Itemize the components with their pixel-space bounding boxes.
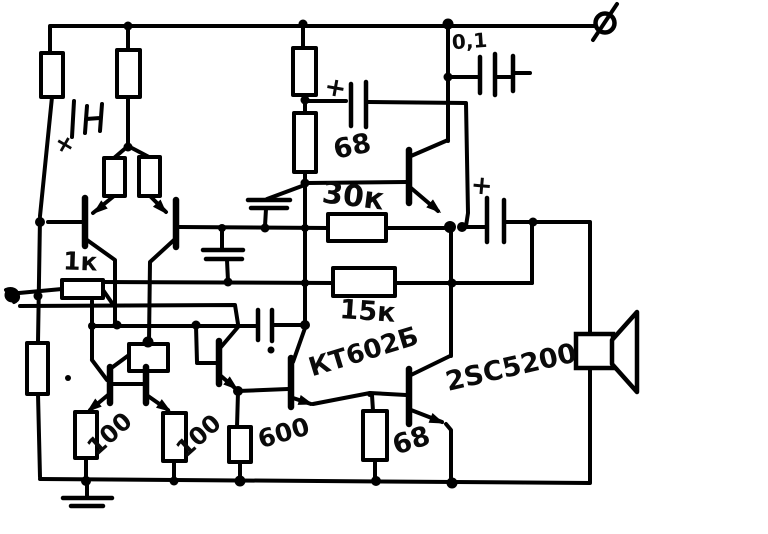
output-terminal [593,4,617,40]
resistor-1k [62,280,103,298]
emitter-arrow-icon [298,396,312,405]
left-riser-92 [92,301,107,380]
output-node-wires [466,222,590,334]
speaker [576,312,637,392]
speaker-horn-icon [612,312,637,392]
plus-mark-supply: + [49,127,80,161]
resistor-diff-emitter-b [139,157,160,196]
emitter-arrow-icon [429,414,443,423]
resistor-diff-emitter-a [104,158,125,196]
feedback-line-283 [103,282,532,283]
capacitor-symbol-sketch [72,101,102,137]
resistor-600 [229,427,251,462]
speaker-body [576,334,613,368]
amplifier-schematic: 0,1 68 30к 15к 1к КТ602Б 2SC5200 100 100… [0,0,768,534]
resistor-bootstrap-68 [294,113,316,172]
label-r-15k: 15к [339,294,397,329]
input-terminal [5,288,20,303]
input-signal-line [19,289,238,324]
resistor-left-lower [27,343,48,394]
label-r-600: 600 [255,412,313,454]
label-cap-0-1: 0,1 [451,28,488,54]
ground-symbol-strokes [63,498,112,506]
resistor-top-left [41,53,63,97]
schematic-page: 0,1 68 30к 15к 1к КТ602Б 2SC5200 100 100… [0,0,768,534]
diff-pair-wires [87,196,328,341]
resistor-tail [117,50,140,97]
resistor-30k [328,214,386,241]
resistor-15k [333,268,395,296]
resistor-68-base [363,411,387,460]
label-transistor-kt602: КТ602Б [305,321,422,383]
cap-node-a-plates [203,250,243,259]
cap-bootstrap-plates [351,82,366,127]
cap-0-1-plates [480,54,513,95]
label-r-bootstrap-68: 68 [331,128,374,166]
bottom-ground-rail [40,479,590,483]
cap-node-b-plates [248,200,290,208]
label-r-68-base: 68 [389,420,434,461]
plus-mark-output: + [470,170,494,202]
cap-output-electrolytic-plates [487,198,504,242]
cap-series-325-plates [258,310,272,341]
resistor-bootstrap-upper [293,48,316,95]
label-r-1k: 1к [63,246,98,276]
out-cap-leads [448,73,530,77]
label-r-30k: 30к [320,175,386,217]
label-transistor-2sc5200: 2SC5200 [443,338,580,398]
